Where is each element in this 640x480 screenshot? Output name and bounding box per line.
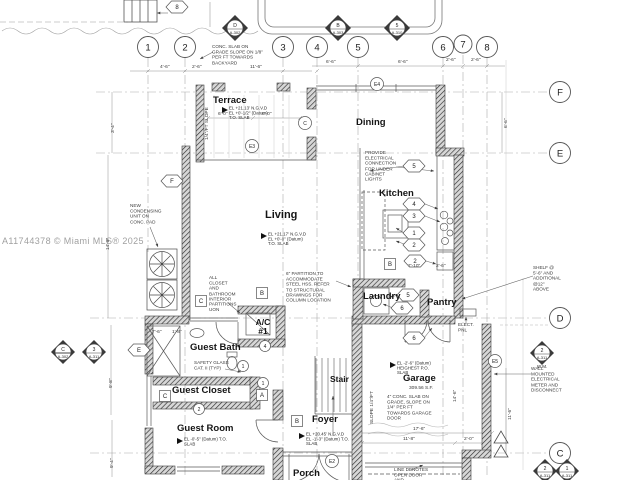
room-label-dining: Dining xyxy=(356,117,386,128)
dim-text: 6'-0" xyxy=(218,111,228,116)
dim-text: 1'-8" xyxy=(172,329,182,334)
svg-text:A-311: A-311 xyxy=(537,355,548,360)
room-label-guest-closet: Guest Closet xyxy=(172,385,231,396)
grid-col-3: 3 xyxy=(280,43,285,54)
dim-text: 2'-6" xyxy=(436,263,446,268)
note-closet-partitions: ALL CLOSET AND BATHROOM INTERIOR PARTITI… xyxy=(209,275,236,312)
detail-tag: 4 xyxy=(264,344,267,350)
svg-text:D: D xyxy=(233,23,237,29)
dim-text: 6'-6" xyxy=(326,59,336,64)
grid-lines xyxy=(90,55,548,476)
elevation-garage: EL -2'-6" (Datum) HEIGHEST P.O. SLAB xyxy=(397,361,441,376)
outdoor-structure xyxy=(124,0,157,22)
dim-text-vertical: 6'-6" xyxy=(503,118,508,128)
detail-tag: 1 xyxy=(262,381,265,387)
door-tag: B xyxy=(260,291,264,297)
door-tag: A xyxy=(260,393,264,399)
condensing-units xyxy=(147,249,177,310)
dim-text-vertical: 3'-4" xyxy=(110,123,115,133)
section-marker: 5 A-310 xyxy=(384,15,410,41)
dim-text: 11'-6" xyxy=(250,64,262,69)
dim-text: 7'-10" xyxy=(408,263,420,268)
dim-text: 4'-6" xyxy=(160,64,170,69)
note-elect-panel: ELECT. PNL xyxy=(458,322,475,333)
door-tag: B xyxy=(295,419,299,425)
svg-text:A-311: A-311 xyxy=(540,473,551,478)
grid-col-2: 2 xyxy=(182,43,187,54)
garage-area-label: 309.56 S.F. xyxy=(409,385,433,390)
dim-text-vertical: 1/4"/FT SLOPE xyxy=(204,107,209,140)
grid-col-4: 4 xyxy=(314,43,319,54)
room-label-kitchen: Kitchen xyxy=(379,188,414,199)
grid-col-1: 1 xyxy=(145,43,150,54)
room-label-living: Living xyxy=(265,209,297,221)
door-tag: B xyxy=(388,262,392,268)
grid-row-f: F xyxy=(557,88,563,99)
detail-tag: E3 xyxy=(249,144,255,150)
mls-watermark: A11744378 © Miami MLS® 2025 xyxy=(2,236,144,246)
note-leaders xyxy=(150,13,533,470)
room-label-stair: Stair xyxy=(330,374,349,384)
section-marker: 2 A-311 xyxy=(530,341,554,365)
wall-tag: F xyxy=(170,179,174,185)
door-tag: C xyxy=(163,394,168,400)
room-label-pantry: Pantry xyxy=(427,297,457,308)
section-marker: C A-302 xyxy=(51,340,75,364)
svg-text:A-311: A-311 xyxy=(562,473,573,478)
dim-text: 17'-6" xyxy=(413,426,425,431)
section-marker: B A-303 xyxy=(325,15,351,41)
grid-col-7: 7 xyxy=(460,40,465,51)
room-label-laundry: Laundry xyxy=(363,291,400,302)
dim-text-vertical: 9'-4" xyxy=(109,458,114,468)
svg-text:C: C xyxy=(61,347,65,353)
section-marker: 3 A-311 xyxy=(82,340,106,364)
note-steel-partition: 6" PARTITION TO ACCOMMODATE STEEL HSS. R… xyxy=(286,271,334,303)
svg-text:3: 3 xyxy=(93,347,96,353)
section-marker: D A-302 xyxy=(222,15,248,41)
detail-tag: C xyxy=(303,121,307,127)
note-electrical-meter: WALL MOUNTED ELECTRICAL METER AND DISCON… xyxy=(531,366,559,393)
note-open-door-line: LINE DENOTES OPEN DOOR AND xyxy=(394,467,430,480)
detail-tag: 2 xyxy=(198,407,201,413)
elevation-foyer: EL +20.45' N.G.V.D EL -1'-3" (Datum) T.O… xyxy=(306,432,350,447)
svg-text:5: 5 xyxy=(396,23,399,29)
grid-row-e: E xyxy=(557,149,563,160)
note-garage-slab: 4" CONC. SLAB ON GRADE, SLOPE ON 1/4" PE… xyxy=(387,394,436,421)
grid-row-c: C xyxy=(557,449,564,460)
floor-plan-sheet: 1 2 3 4 5 6 7 8 F E D C D A-302 B A-303 … xyxy=(0,0,640,480)
wall-tag: E xyxy=(137,348,141,354)
dim-text: 6'-6" xyxy=(398,59,408,64)
grid-col-5: 5 xyxy=(355,43,360,54)
note-safety-glass: SAFETY GLASS CAT. II (TYP) xyxy=(194,360,229,371)
note-shelf: SHELF @ 5'-6" AND ADDITIONAL @12" ABOVE xyxy=(533,265,560,292)
detail-tag: E2 xyxy=(329,459,335,465)
svg-text:A-302: A-302 xyxy=(58,354,69,359)
dim-text: 2'-6" xyxy=(192,64,202,69)
elevation-living: EL +21.17' N.G.V.D EL +0'-0" (Datum) T.O… xyxy=(268,232,312,247)
dim-text-vertical: 14'-6" xyxy=(452,390,457,402)
room-label-guest-room: Guest Room xyxy=(177,423,233,434)
grid-row-d: D xyxy=(557,314,564,325)
room-label-terrace: Terrace xyxy=(213,95,247,106)
dim-text: 2'-6" xyxy=(471,57,481,62)
grid-col-8: 8 xyxy=(484,43,489,54)
dim-text: 6'-0" xyxy=(262,111,272,116)
note-slab-backyard: CONC. SLAB ON GRADE SLOPE ON 1/8" PER FT… xyxy=(212,44,263,65)
dim-text: 7'-6" xyxy=(152,329,162,334)
dim-text-vertical: 14'-8" xyxy=(105,238,110,250)
note-condensing-unit: NEW CONDENSING UNIT ON CONC. PAD xyxy=(130,203,160,224)
svg-text:A-302: A-302 xyxy=(230,30,241,35)
svg-text:A-311: A-311 xyxy=(89,354,100,359)
dim-text: 2'-6" xyxy=(446,57,456,62)
room-label-guest-bath: Guest Bath xyxy=(190,342,241,353)
room-label-ac: A/C #1 xyxy=(250,318,276,337)
room-label-porch: Porch xyxy=(293,468,320,479)
detail-tag: E4 xyxy=(374,82,380,88)
svg-text:A-310: A-310 xyxy=(392,30,403,35)
dim-text: 2'-0" xyxy=(464,436,474,441)
dim-text-vertical: 9'-8" xyxy=(108,378,113,388)
svg-text:A-303: A-303 xyxy=(333,30,344,35)
svg-text:1: 1 xyxy=(566,466,569,472)
svg-text:2: 2 xyxy=(544,466,547,472)
elevation-guest-room: EL -0'-5" (Datum) T.O. SLAB xyxy=(184,437,228,447)
dim-text: 11'-8" xyxy=(403,436,415,441)
section-marker: 2 A-311 xyxy=(533,459,557,480)
grid-col-6: 6 xyxy=(440,43,445,54)
detail-tag: E5 xyxy=(492,359,498,365)
dim-text-vertical: 11'-6" xyxy=(507,408,512,420)
room-label-foyer: Foyer xyxy=(312,414,338,425)
door-tag: C xyxy=(199,299,204,305)
svg-text:2: 2 xyxy=(541,348,544,354)
note-under-cabinet-lights: PROVIDE ELECTRICAL CONNECTION FOR UNDER … xyxy=(365,150,399,182)
detail-tag: 1 xyxy=(242,364,245,370)
dim-text-vertical: SLOPE 1/4"/FT xyxy=(369,391,374,424)
